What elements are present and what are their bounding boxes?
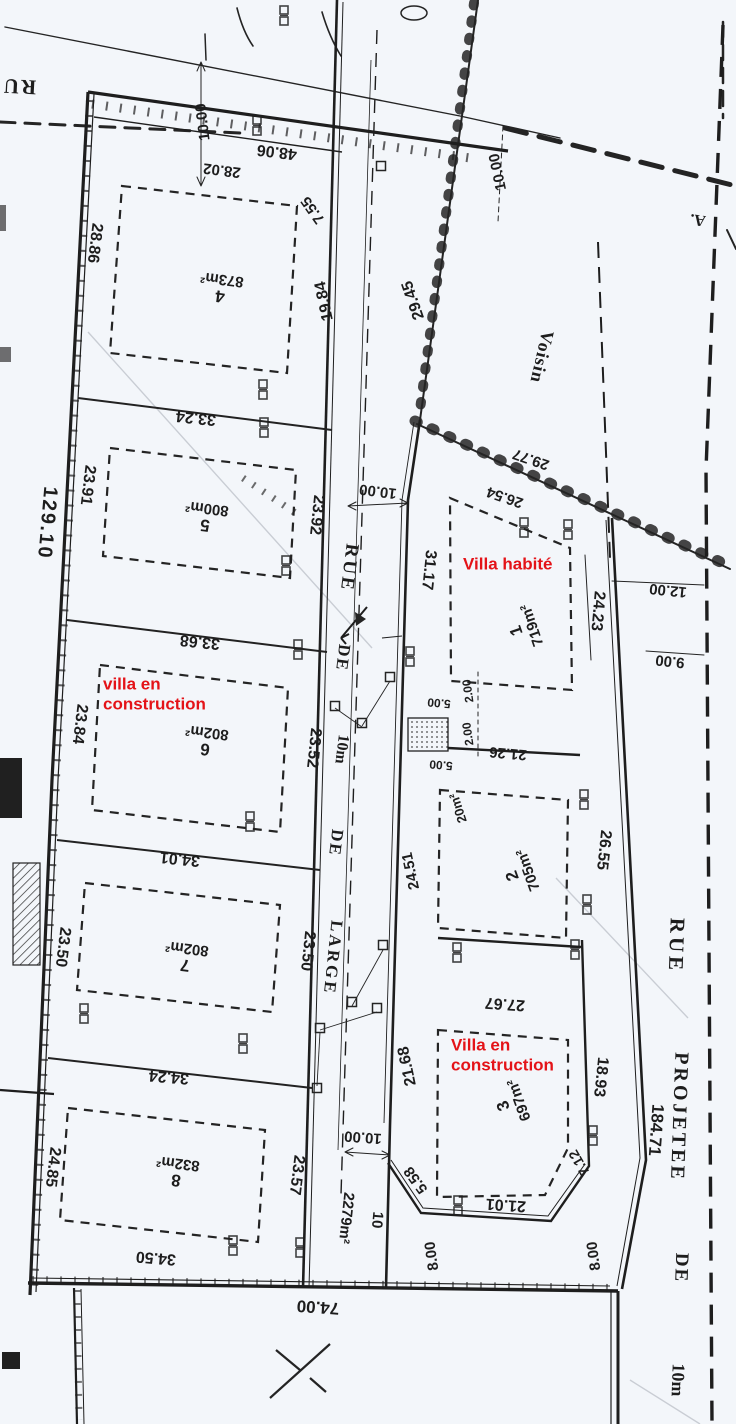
dimension-label: 24.23 (587, 590, 607, 631)
street-label-proj-de: DE (671, 1252, 691, 1283)
dimension-label: 29.45 (400, 278, 428, 321)
dimension-label: 28.86 (83, 222, 104, 264)
dimension-label: 27.67 (484, 993, 525, 1012)
dimension-label: 48.06 (256, 140, 298, 161)
dimension-label: 26.54 (485, 484, 525, 511)
dimension-label: 34.50 (135, 1247, 176, 1267)
dimension-label: 28.02 (202, 160, 241, 180)
dimension-label: 33.68 (179, 631, 221, 651)
dimension-label: 33.24 (175, 407, 217, 427)
dimension-label: 19.84 (313, 280, 337, 323)
dimension-label: 74.00 (296, 1297, 340, 1317)
dimension-label: 184.71 (646, 1103, 667, 1156)
dimension-label: 9.00 (655, 652, 686, 670)
street-label-topleft: RU (1, 74, 36, 97)
parcel-label: 5800m² (182, 498, 229, 537)
street-label-proj-10m: 10m (668, 1363, 687, 1397)
parcel-label: 2705m² (497, 847, 543, 899)
dimension-label: 5.58 (401, 1164, 431, 1197)
dimension-label: 34.01 (159, 848, 201, 868)
dimension-label: 23.92 (306, 494, 326, 536)
dimension-label: 2.00 (460, 722, 475, 747)
red-annotation: construction (451, 1056, 554, 1073)
dimension-label: 24.85 (41, 1146, 62, 1188)
dimension-label: 10.00 (358, 481, 397, 501)
dimension-label: 10.00 (487, 152, 510, 192)
parcel-label: 7802m² (162, 938, 209, 977)
dimension-label: 5.00 (427, 696, 451, 710)
neighbor-label: Voisin (527, 329, 557, 385)
street-label-central-10m: 10m (331, 733, 351, 764)
dimension-label: 23.91 (76, 464, 97, 506)
dimension-label: 23.50 (51, 926, 72, 968)
street-label-central-de1: DE (333, 643, 354, 673)
dimension-label: 23.57 (285, 1154, 306, 1196)
dimension-label: 129.10 (34, 486, 61, 561)
dimension-label: 24.51 (400, 851, 423, 891)
dimension-label: 31.17 (418, 549, 438, 591)
dimension-label: 10.00 (193, 102, 213, 141)
dimension-label: 21.01 (485, 1194, 526, 1213)
street-label-central-large: LARGE (320, 920, 345, 997)
dimension-label: 7.55 (298, 194, 327, 227)
dimension-label: 18.93 (590, 1056, 610, 1098)
dimension-label: 29.77 (511, 446, 551, 473)
parcel-label: 3697m² (488, 1077, 534, 1129)
parcel-label: 8832m² (153, 1153, 200, 1192)
dimension-label: 2.00 (460, 679, 475, 704)
red-annotation: Villa en (451, 1036, 510, 1053)
red-annotation: villa en (103, 675, 161, 692)
street-label-central-rue: RUE (336, 542, 361, 593)
parcel-area-label: 2279m² (336, 1191, 357, 1244)
red-annotation: construction (103, 695, 206, 712)
dimension-label: 26.55 (593, 829, 613, 871)
corner-ref-label: A. (689, 210, 707, 228)
red-annotation: Villa habité (463, 555, 552, 572)
parcel-number-label: 10 (369, 1211, 386, 1229)
parcel-label: 4873m² (197, 269, 244, 308)
dimension-label: 23.52 (303, 727, 323, 769)
dimension-label: 23.84 (68, 703, 89, 745)
map-labels: RUEDE10mDELARGERUEPROJETEEDE10mRUVoisinA… (0, 0, 736, 1424)
parcel-label: 6802m² (182, 722, 229, 761)
dimension-label: 20m² (447, 792, 469, 825)
street-label-proj-projetee: PROJETEE (667, 1052, 692, 1182)
dimension-label: 8.00 (584, 1240, 603, 1271)
dimension-label: 10.00 (344, 1128, 383, 1146)
dimension-label: 8.00 (422, 1240, 441, 1271)
street-label-central-de2: DE (326, 828, 347, 858)
dimension-label: 23.50 (297, 930, 317, 972)
dimension-label: 7.12 (566, 1148, 592, 1179)
dimension-label: 34.24 (148, 1066, 189, 1086)
street-label-proj-rue: RUE (664, 917, 687, 974)
dimension-label: 5.00 (429, 758, 453, 772)
survey-map: RUEDE10mDELARGERUEPROJETEEDE10mRUVoisinA… (0, 0, 736, 1424)
parcel-label: 1719m² (501, 602, 547, 654)
dimension-label: 12.00 (649, 580, 688, 599)
dimension-label: 21.68 (396, 1045, 420, 1088)
dimension-label: 21.26 (489, 744, 528, 763)
